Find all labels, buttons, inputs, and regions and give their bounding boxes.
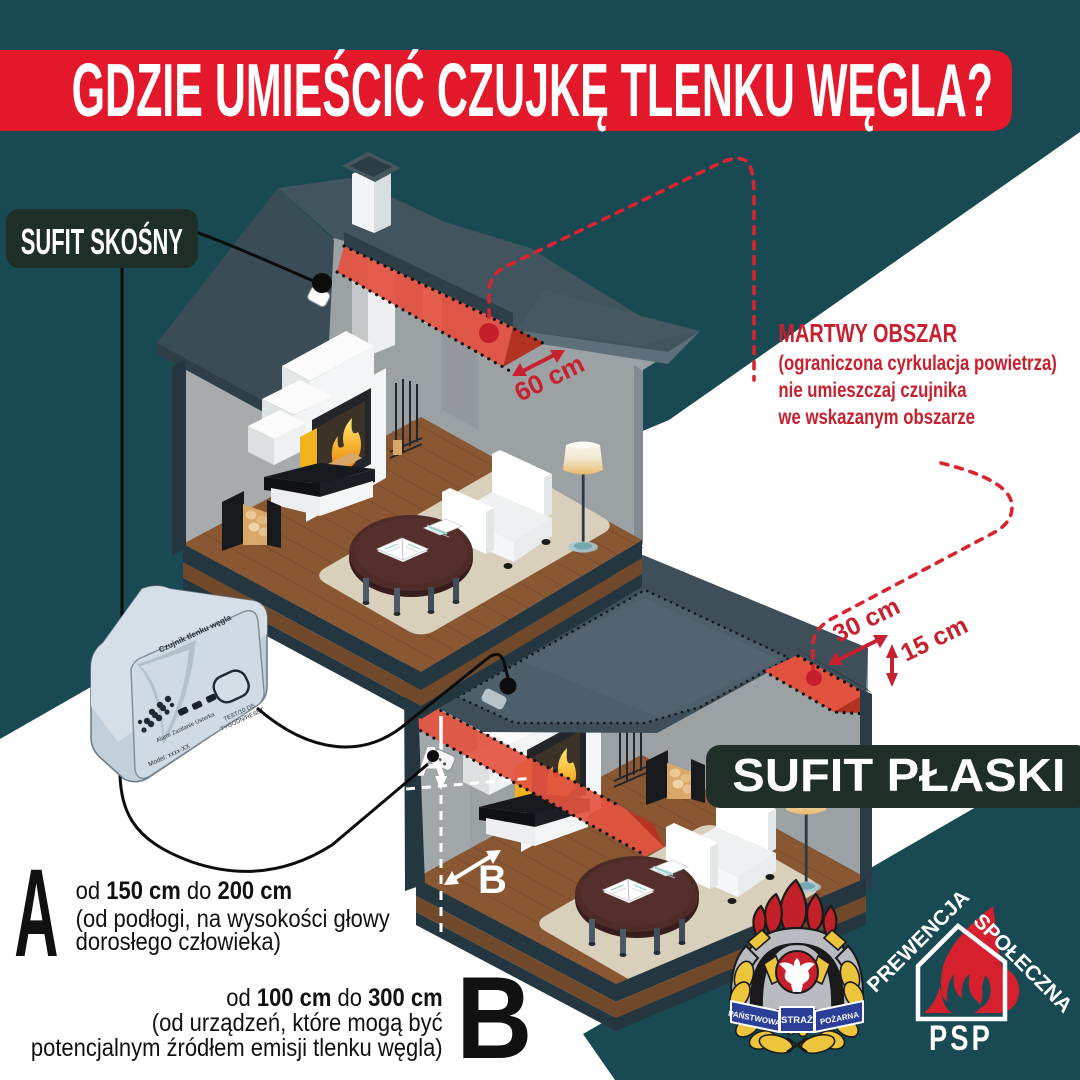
svg-text:we wskazanym obszarze: we wskazanym obszarze (778, 406, 976, 429)
svg-text:(od urządzeń, które mogą być: (od urządzeń, które mogą być (152, 1009, 443, 1037)
svg-text:potencjalnym źródłem emisji tl: potencjalnym źródłem emisji tlenku węgla… (31, 1034, 443, 1062)
svg-text:(ograniczona cyrkulacja powiet: (ograniczona cyrkulacja powietrza) (778, 352, 1056, 375)
svg-text:od 100 cm do 300 cm: od 100 cm do 300 cm (226, 984, 442, 1012)
svg-text:A: A (14, 843, 58, 983)
svg-text:GDZIE UMIEŚCIĆ CZUJKĘ TLENKU W: GDZIE UMIEŚCIĆ CZUJKĘ TLENKU WĘGLA? (72, 49, 993, 132)
svg-text:SUFIT SKOŚNY: SUFIT SKOŚNY (21, 221, 183, 262)
svg-text:nie umieszczaj czujnika: nie umieszczaj czujnika (778, 379, 966, 402)
svg-text:B: B (478, 858, 507, 902)
svg-text:B: B (456, 952, 532, 1080)
svg-text:SUFIT PŁASKI: SUFIT PŁASKI (732, 750, 1065, 801)
svg-text:dorosłego człowieka): dorosłego człowieka) (76, 928, 281, 956)
svg-text:od 150 cm do 200 cm: od 150 cm do 200 cm (76, 877, 292, 905)
svg-text:PSP: PSP (929, 1019, 993, 1058)
svg-text:MARTWY OBSZAR: MARTWY OBSZAR (778, 319, 957, 348)
svg-text:STRAŻ: STRAŻ (781, 1015, 813, 1026)
